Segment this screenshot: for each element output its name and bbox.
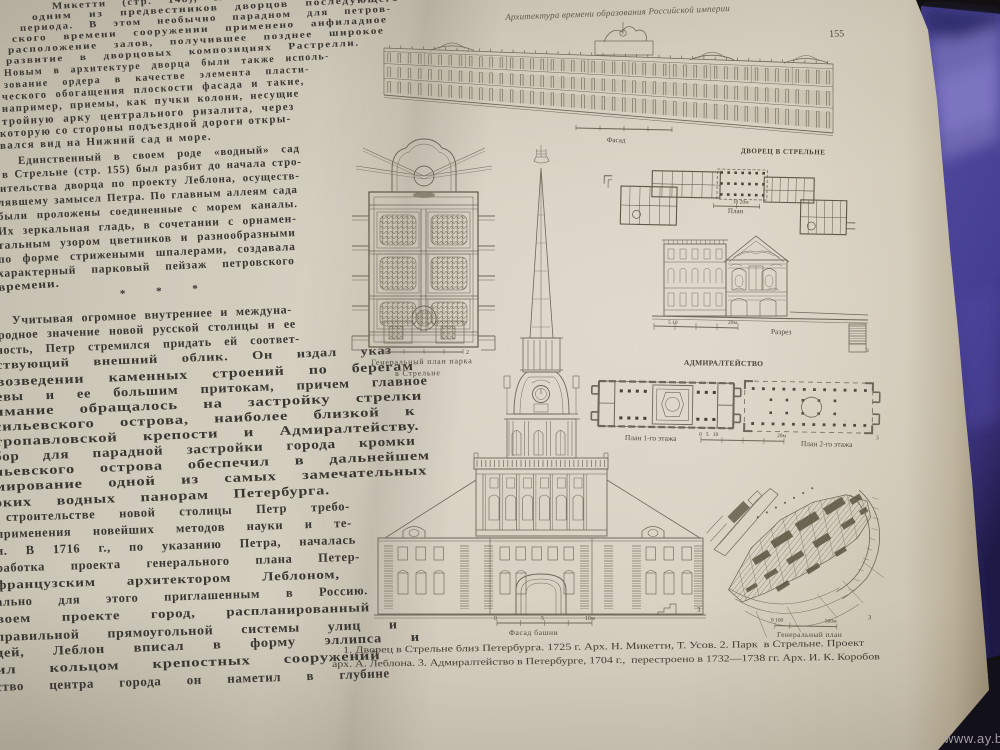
svg-text:10 20м: 10 20м [733,199,749,205]
svg-text:500м: 500м [825,618,837,624]
svg-text:0 5 10: 0 5 10 [699,432,719,438]
svg-text:2: 2 [466,350,469,356]
svg-text:5: 5 [541,616,544,622]
svg-text:0: 0 [494,616,497,622]
svg-text:3: 3 [868,614,871,621]
svg-text:20м: 20м [728,320,738,326]
svg-text:20м: 20м [777,433,787,439]
svg-text:3: 3 [876,435,879,441]
svg-text:0 100: 0 100 [771,618,784,624]
svg-text:10м: 10м [585,616,595,622]
svg-text:3: 3 [866,348,869,354]
svg-text:5 10: 5 10 [668,320,678,326]
svg-text:3: 3 [697,606,701,614]
